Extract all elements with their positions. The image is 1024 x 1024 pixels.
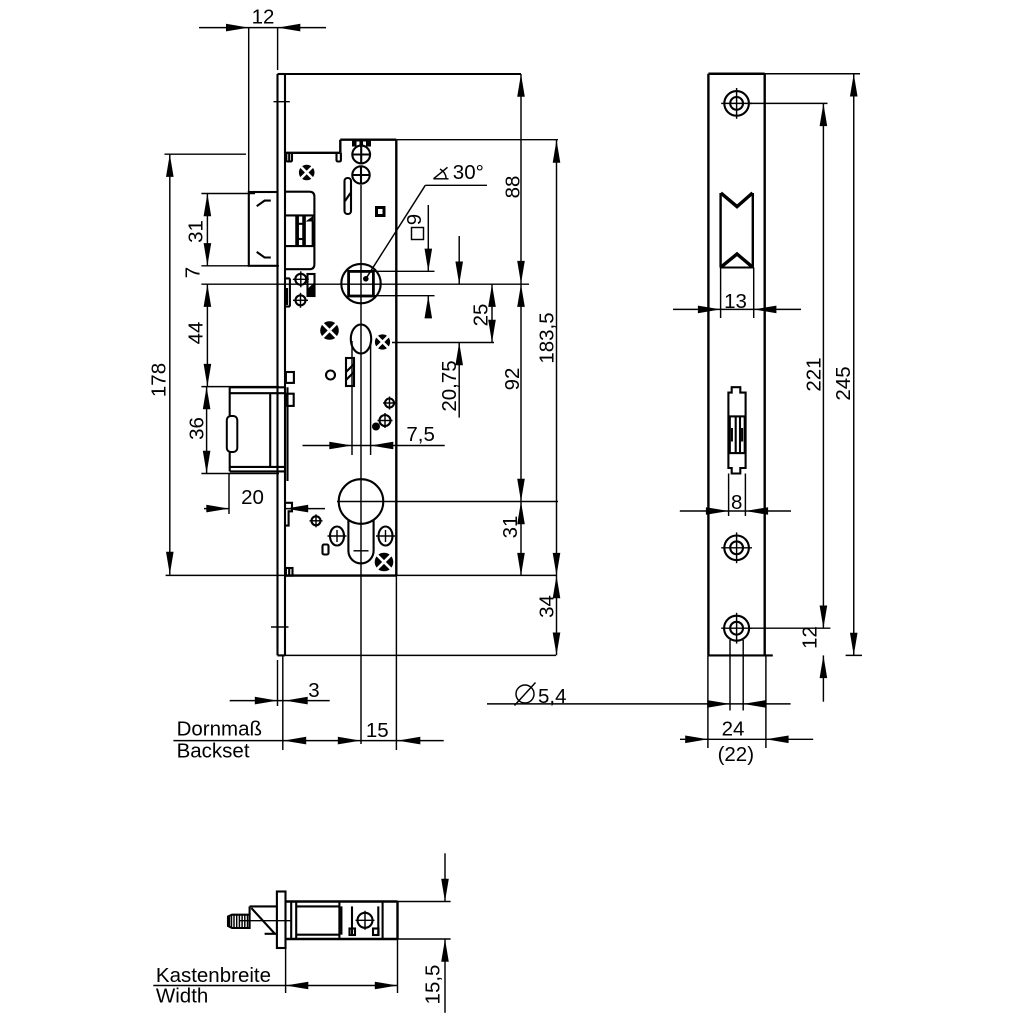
svg-text:7: 7 (182, 267, 205, 278)
svg-text:7,5: 7,5 (406, 423, 435, 446)
svg-text:(22): (22) (718, 743, 754, 766)
svg-text:24: 24 (722, 718, 745, 741)
svg-text:36: 36 (186, 417, 209, 440)
svg-text:25: 25 (470, 304, 493, 327)
svg-text:183,5: 183,5 (536, 312, 559, 363)
svg-text:245: 245 (832, 366, 855, 400)
svg-text:15,5: 15,5 (422, 965, 445, 1005)
svg-text:12: 12 (799, 626, 822, 649)
svg-text:31: 31 (499, 516, 522, 539)
svg-text:12: 12 (252, 6, 275, 29)
svg-text:88: 88 (502, 176, 525, 199)
svg-text:20: 20 (241, 486, 264, 509)
svg-text:15: 15 (366, 719, 389, 742)
svg-text:8: 8 (731, 491, 742, 514)
svg-text:34: 34 (536, 595, 559, 618)
svg-text:3: 3 (308, 679, 319, 702)
svg-text:Dornmaß: Dornmaß (177, 717, 262, 740)
svg-text:20,75: 20,75 (438, 360, 461, 411)
svg-text:92: 92 (501, 368, 524, 391)
svg-text:9: 9 (403, 214, 426, 225)
svg-text:221: 221 (802, 357, 825, 391)
svg-text:5,4: 5,4 (538, 685, 567, 708)
svg-text:30°: 30° (453, 161, 484, 184)
svg-text:31: 31 (184, 220, 207, 243)
svg-text:13: 13 (724, 290, 747, 313)
svg-text:44: 44 (185, 322, 208, 345)
svg-text:178: 178 (148, 363, 171, 397)
svg-text:Width: Width (156, 985, 208, 1008)
svg-text:Backset: Backset (177, 739, 250, 762)
